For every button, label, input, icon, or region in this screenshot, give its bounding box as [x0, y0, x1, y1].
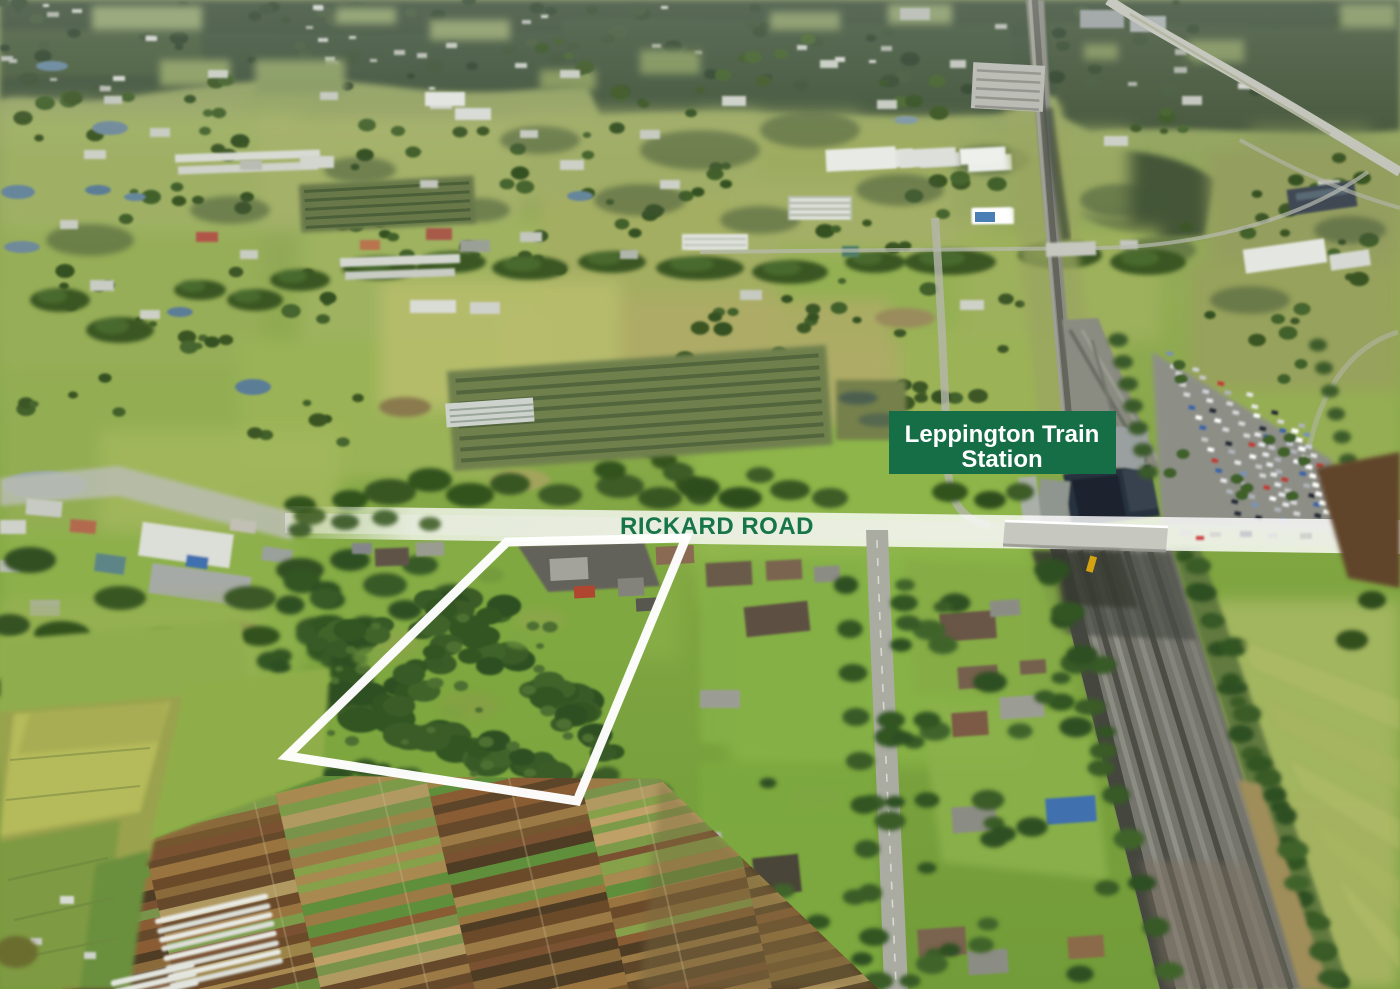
svg-text:Station: Station [961, 446, 1042, 473]
svg-text:Leppington Train: Leppington Train [905, 421, 1100, 448]
